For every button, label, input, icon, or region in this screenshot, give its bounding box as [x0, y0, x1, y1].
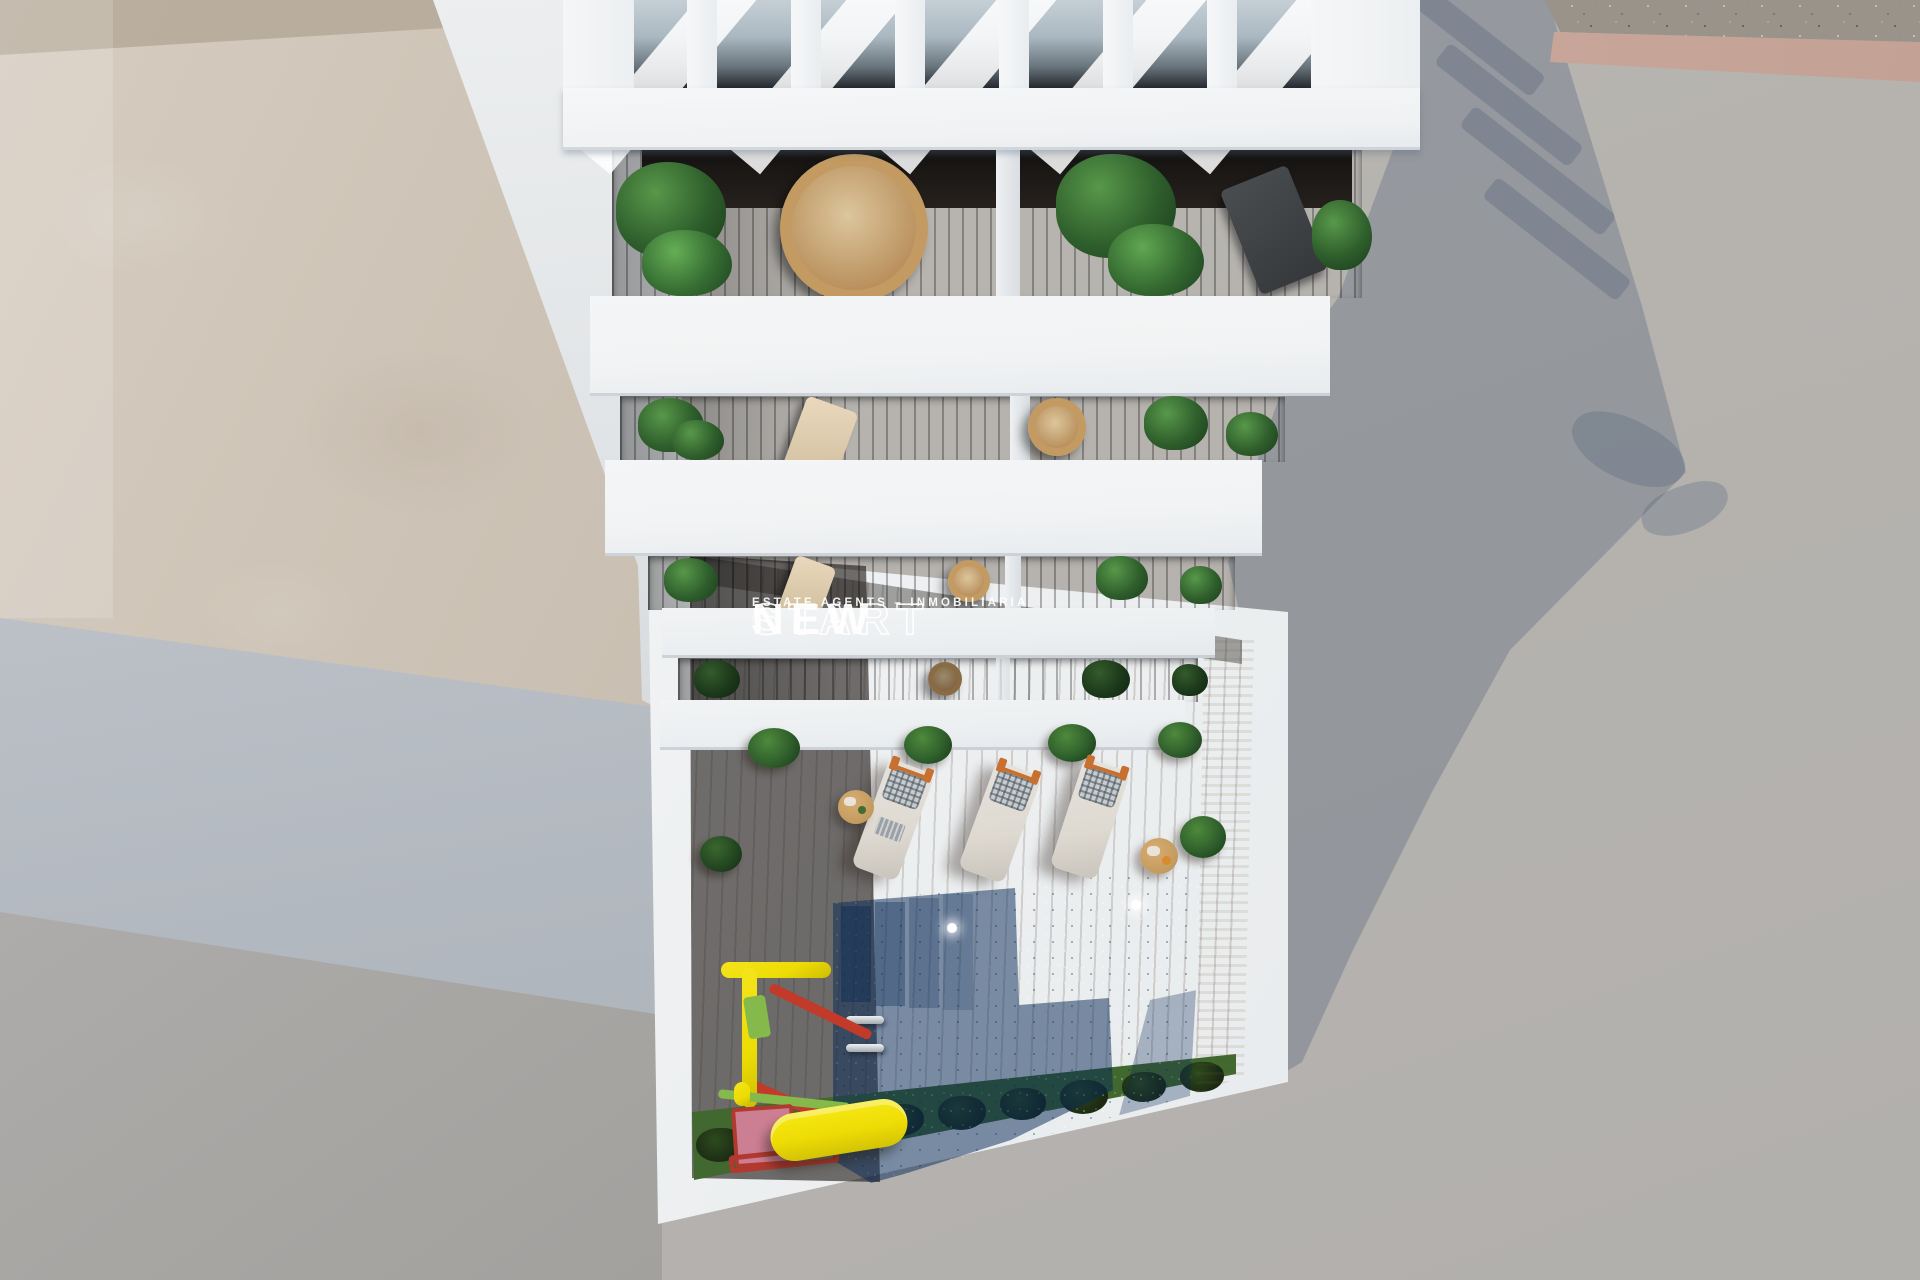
pergola-frame-left — [563, 0, 634, 92]
table-item — [844, 797, 856, 806]
balcony-plant — [672, 420, 724, 460]
balcony-divider — [996, 146, 1020, 298]
balcony-level-1-front — [590, 296, 1330, 396]
balcony-level-2 — [620, 394, 1285, 462]
balcony-plant — [1082, 660, 1130, 698]
deck-planter — [700, 836, 742, 872]
hanging-chair — [948, 560, 990, 602]
balcony-plant — [694, 660, 740, 698]
side-table — [1140, 838, 1178, 874]
balcony-plant — [1096, 556, 1148, 600]
balcony-level-2-front — [605, 460, 1262, 556]
pergola-glass-roof — [563, 0, 1420, 92]
table-item — [1162, 856, 1171, 865]
deck-planter — [1180, 816, 1226, 858]
balcony-plant — [1180, 566, 1222, 604]
hanging-chair — [928, 662, 962, 696]
pergola-frame-right — [1311, 0, 1420, 92]
deck-planter — [904, 726, 952, 764]
balcony-plant — [1312, 200, 1372, 270]
table-item — [858, 806, 866, 814]
balcony-level-4 — [678, 656, 1198, 702]
balcony-level-1 — [612, 146, 1362, 298]
pergola-slat — [895, 0, 925, 92]
playground-top-bar — [721, 962, 831, 978]
pool-light — [1131, 900, 1141, 910]
balcony-divider — [1010, 394, 1030, 462]
balcony-plant — [1172, 664, 1208, 696]
deck-planter — [1158, 722, 1202, 758]
pergola-slat — [999, 0, 1029, 92]
deck-planter — [748, 728, 800, 768]
balcony-plant — [664, 558, 718, 602]
table-item — [1147, 846, 1160, 856]
pergola-band — [563, 88, 1420, 150]
balcony-palm — [642, 230, 732, 296]
balcony-plant — [1108, 224, 1204, 296]
pergola-slat — [791, 0, 821, 92]
balcony-level-3-front — [662, 608, 1215, 658]
left-light-strip — [0, 0, 113, 618]
pool-ladder — [846, 1044, 884, 1052]
hanging-chair — [780, 154, 928, 302]
balcony-divider — [996, 656, 1010, 702]
playground-joint — [734, 1082, 750, 1106]
pool-light — [947, 923, 957, 933]
balcony-plant — [1226, 412, 1278, 456]
aerial-render-scene: NEWSTART® ESTATE AGENTS – INMOBILIARIA — [0, 0, 1920, 1280]
hanging-chair — [1028, 398, 1086, 456]
pergola-slat — [1103, 0, 1133, 92]
side-table — [838, 790, 874, 824]
balcony-plant — [1144, 396, 1208, 450]
pergola-slat — [687, 0, 717, 92]
pergola-slat — [1207, 0, 1237, 92]
tagline-text: ESTATE AGENTS – INMOBILIARIA — [752, 597, 1029, 609]
